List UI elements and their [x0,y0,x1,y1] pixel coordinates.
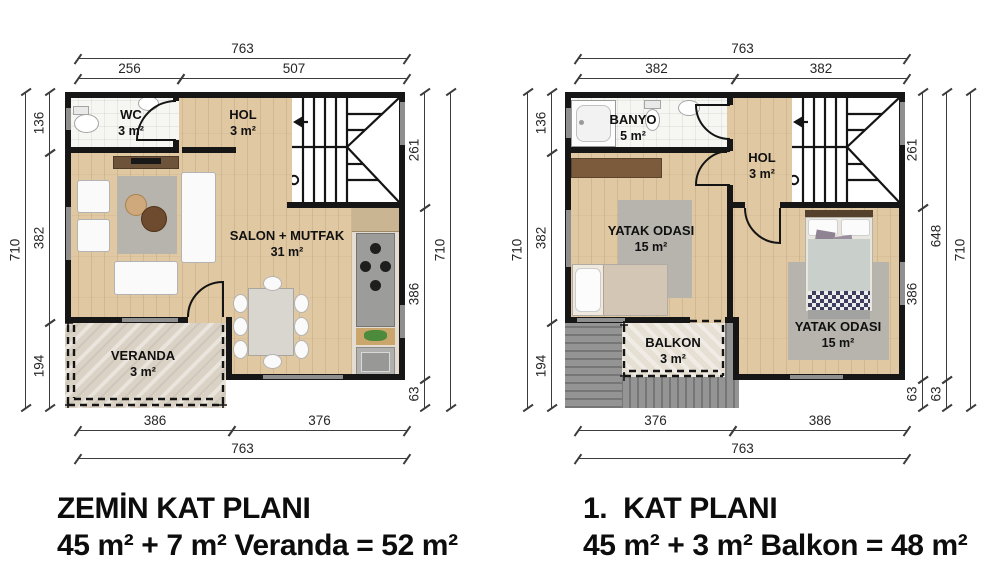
room-label-hol: HOL 3 m² [748,150,775,182]
dim-right-bottom: 63 [424,380,425,408]
dim-total-height: 710 [527,92,528,408]
dim-top-left: 382 [578,78,735,79]
dim-right-mid: 386 [424,208,425,380]
dim-right-top: 261 [922,92,923,208]
dim-left-mid: 382 [49,153,50,323]
room-label-bedroom-left: YATAK ODASI 15 m² [608,223,694,255]
room-name: HOL [748,150,775,165]
dim-bottom-right: 386 [733,430,907,431]
dim-total-height-right: 710 [970,92,971,408]
dim-left-bottom: 194 [49,323,50,408]
ground-floor-plan: WC 3 m² HOL 3 m² SALON + MUTFAK 31 m² VE… [65,92,405,408]
room-name: YATAK ODASI [795,319,881,334]
room-label-bedroom-right: YATAK ODASI 15 m² [795,319,881,351]
room-name: HOL [229,107,256,122]
door-swing-icon [696,151,730,185]
dim-bottom-left: 376 [578,430,733,431]
room-area: 15 m² [608,239,694,255]
dim-total-height-right: 710 [450,92,451,408]
room-label-hol: HOL 3 m² [229,107,256,139]
dim-total-width-bottom: 763 [578,458,907,459]
dim-top-left: 256 [78,78,181,79]
room-label-wc: WC 3 m² [118,107,144,139]
room-area: 3 m² [111,364,175,380]
dim-bottom-right: 376 [232,430,407,431]
ground-floor-title: ZEMİN KAT PLANI [57,492,310,526]
room-name: YATAK ODASI [608,223,694,238]
room-label-salon: SALON + MUTFAK 31 m² [230,228,344,260]
dim-left-mid: 382 [551,153,552,323]
dim-top-right: 382 [735,78,907,79]
dim-total-width: 763 [578,58,907,59]
first-floor-plan: BANYO 5 m² HOL 3 m² YATAK ODASI 15 m² YA… [565,92,905,408]
room-area: 3 m² [118,123,144,139]
room-label-veranda: VERANDA 3 m² [111,348,175,380]
dim-right-span-bottom: 63 [946,380,947,408]
dim-right-top: 261 [424,92,425,208]
room-area: 5 m² [610,128,657,144]
dim-total-height: 710 [25,92,26,408]
room-label-banyo: BANYO 5 m² [610,112,657,144]
room-name: WC [120,107,142,122]
dim-right-mid: 386 [922,208,923,380]
dim-right-bottom: 63 [922,380,923,408]
door-swing-icon [696,105,730,139]
dim-left-top: 136 [551,92,552,153]
dim-left-bottom: 194 [551,323,552,408]
room-area: 31 m² [230,244,344,260]
room-area: 3 m² [645,351,701,367]
room-name: SALON + MUTFAK [230,228,344,243]
door-swing-icon [188,282,223,317]
dim-left-top: 136 [49,92,50,153]
dim-bottom-left: 386 [78,430,232,431]
room-name: BANYO [610,112,657,127]
dim-top-right: 507 [181,78,407,79]
dim-total-width: 763 [78,58,407,59]
ground-floor-area-summary: 45 m² + 7 m² Veranda = 52 m² [57,529,458,563]
room-area: 3 m² [748,166,775,182]
first-floor-area-summary: 45 m² + 3 m² Balkon = 48 m² [583,529,967,563]
room-label-balkon: BALKON 3 m² [645,335,701,367]
room-name: VERANDA [111,348,175,363]
room-name: BALKON [645,335,701,350]
dim-right-span: 648 [946,92,947,380]
door-swing-icon [745,208,780,243]
floor-plans-page: WC 3 m² HOL 3 m² SALON + MUTFAK 31 m² VE… [0,0,1000,582]
dim-total-width-bottom: 763 [78,458,407,459]
room-area: 3 m² [229,123,256,139]
first-floor-title: 1. KAT PLANI [583,492,777,526]
room-area: 15 m² [795,335,881,351]
